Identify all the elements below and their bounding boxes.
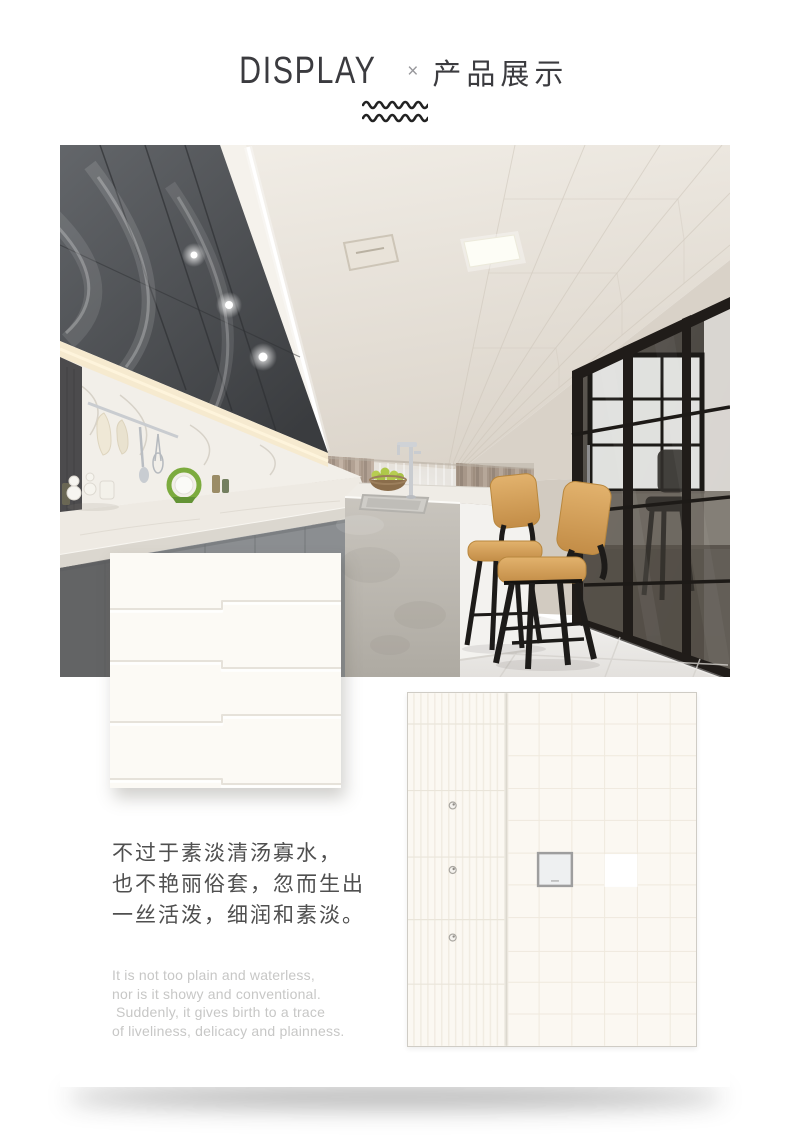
content-card: DISPLAY × 产品展示 [60, 0, 730, 1087]
sink [360, 495, 428, 513]
door-handle [587, 445, 590, 483]
ceramic-jar [100, 481, 114, 499]
zh-line: 也不艳丽俗套，忽而生出 [112, 869, 365, 900]
zh-line: 一丝活泼，细润和素淡。 [112, 900, 365, 931]
en-line: of liveliness, delicacy and plainness. [112, 1022, 345, 1041]
vent-unit-marker [538, 853, 572, 886]
en-line: Suddenly, it gives birth to a trace [112, 1003, 345, 1022]
zh-line: 不过于素淡清汤寡水， [112, 838, 365, 869]
section-title: DISPLAY × 产品展示 [60, 50, 730, 93]
title-separator: × [407, 61, 418, 83]
en-line: It is not too plain and waterless, [112, 966, 345, 985]
panel-layout-figure [407, 692, 697, 1047]
description-en: It is not too plain and waterless, nor i… [112, 966, 345, 1040]
card-drop-shadow [68, 1086, 722, 1108]
wave-divider-icon [362, 98, 428, 128]
title-cjk: 产品展示 [432, 51, 568, 93]
product-display-section: DISPLAY × 产品展示 [0, 0, 790, 1147]
title-latin: DISPLAY [239, 50, 376, 93]
swatch-panel [110, 553, 341, 788]
light-panel-marker [605, 854, 638, 887]
en-line: nor is it showy and conventional. [112, 985, 345, 1004]
description-zh: 不过于素淡清汤寡水， 也不艳丽俗套，忽而生出 一丝活泼，细润和素淡。 [112, 838, 365, 931]
